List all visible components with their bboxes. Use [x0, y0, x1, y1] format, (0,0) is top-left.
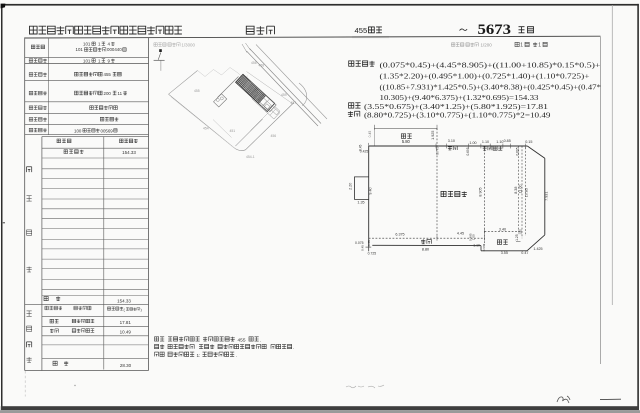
svg-text:0.425: 0.425 [360, 150, 369, 154]
svg-text:((10.85+7.931)*1.425*0.5)+(3.4: ((10.85+7.931)*1.425*0.5)+(3.40*8.38)+(0… [380, 83, 602, 92]
svg-text:455: 455 [194, 89, 200, 93]
svg-text:101: 101 [83, 42, 91, 47]
svg-text:1/3000: 1/3000 [182, 42, 196, 47]
svg-text:0.675: 0.675 [482, 243, 486, 251]
svg-text:2.20: 2.20 [348, 183, 352, 190]
svg-text:0.695: 0.695 [466, 147, 470, 155]
svg-text:0.075: 0.075 [355, 241, 364, 245]
svg-text:154.33: 154.33 [122, 150, 136, 155]
svg-text:0.45: 0.45 [368, 131, 372, 138]
svg-text:7.931: 7.931 [545, 192, 549, 201]
svg-text:10.85: 10.85 [525, 188, 529, 197]
svg-text:458: 458 [259, 64, 265, 68]
svg-text:454-1: 454-1 [246, 155, 255, 159]
svg-text:(8.80*0.725)+(3.10*0.775)+(1.1: (8.80*0.725)+(3.10*0.775)+(1.10*0.775)*2… [364, 110, 551, 119]
svg-text:11: 11 [118, 91, 123, 96]
svg-text:456: 456 [271, 134, 277, 138]
svg-text:.: . [260, 339, 261, 344]
svg-text:1.10: 1.10 [496, 140, 503, 144]
svg-text:459: 459 [281, 93, 287, 97]
svg-text:0.605: 0.605 [515, 147, 519, 155]
svg-text:000440: 000440 [107, 47, 122, 52]
svg-text:101: 101 [76, 47, 84, 52]
svg-text:457: 457 [291, 101, 297, 105]
svg-text:200: 200 [104, 91, 112, 96]
svg-text:1: 1 [538, 43, 541, 49]
svg-text:1: 1 [520, 43, 523, 49]
svg-text:1.25: 1.25 [515, 234, 519, 241]
svg-text:154.33: 154.33 [117, 298, 131, 303]
svg-text:17.81: 17.81 [120, 320, 132, 325]
svg-text:.: . [293, 346, 294, 351]
svg-text:455: 455 [104, 72, 112, 77]
svg-text:00569: 00569 [101, 128, 114, 133]
svg-text:1.10: 1.10 [473, 243, 480, 247]
svg-text:1.425: 1.425 [533, 247, 542, 251]
svg-text:1.10: 1.10 [482, 140, 489, 144]
svg-text:455: 455 [238, 338, 246, 344]
svg-text:0.15: 0.15 [525, 140, 532, 144]
svg-text:0.775: 0.775 [436, 147, 440, 155]
svg-text:1:: 1: [197, 353, 201, 358]
svg-text:456: 456 [251, 61, 257, 65]
svg-text:454: 454 [203, 127, 209, 131]
svg-text:1.925: 1.925 [431, 131, 435, 140]
svg-text:1/200: 1/200 [481, 43, 493, 48]
svg-text:451: 451 [230, 129, 236, 133]
svg-text:100: 100 [74, 128, 82, 133]
svg-text:4.45: 4.45 [457, 232, 464, 236]
svg-text:10.49: 10.49 [120, 330, 132, 335]
svg-text:0.47: 0.47 [521, 251, 528, 255]
svg-text:5673: 5673 [478, 22, 512, 38]
svg-text:11.00: 11.00 [519, 185, 523, 194]
svg-text:3.10: 3.10 [448, 139, 455, 143]
svg-text:8.80: 8.80 [422, 247, 429, 251]
svg-text:10.305)+(9.40*6.375)+(1.32*0.6: 10.305)+(9.40*6.375)+(1.32*0.695)=154.33 [380, 93, 539, 102]
svg-text:3.55: 3.55 [501, 251, 508, 255]
svg-text:0.725: 0.725 [368, 251, 377, 255]
svg-text:5.80: 5.80 [402, 139, 411, 144]
svg-text:101: 101 [83, 58, 91, 63]
svg-text:6.375: 6.375 [395, 232, 404, 236]
svg-text:0.45: 0.45 [360, 245, 364, 251]
svg-text:(1.35*2.20)+(0.495*1.00)+(0.72: (1.35*2.20)+(0.495*1.00)+(0.725*1.40)+(1… [380, 72, 590, 81]
svg-text:1.00: 1.00 [472, 234, 476, 240]
svg-text:.: . [236, 354, 237, 359]
svg-text:1.00: 1.00 [469, 141, 476, 145]
svg-text:9.40: 9.40 [369, 187, 373, 194]
svg-text:8.38: 8.38 [514, 187, 518, 194]
svg-text:3.40: 3.40 [499, 228, 506, 232]
svg-text:0.85: 0.85 [504, 139, 511, 143]
svg-text:1.35: 1.35 [357, 200, 364, 204]
svg-text:8.905: 8.905 [479, 187, 483, 196]
svg-text:455: 455 [355, 26, 368, 35]
svg-text:0.45: 0.45 [367, 240, 371, 246]
svg-text:(0.075*0.45)+(4.45*8.905)+((11: (0.075*0.45)+(4.45*8.905)+((11.00+10.85)… [380, 61, 601, 70]
svg-text:28.30: 28.30 [120, 363, 132, 368]
